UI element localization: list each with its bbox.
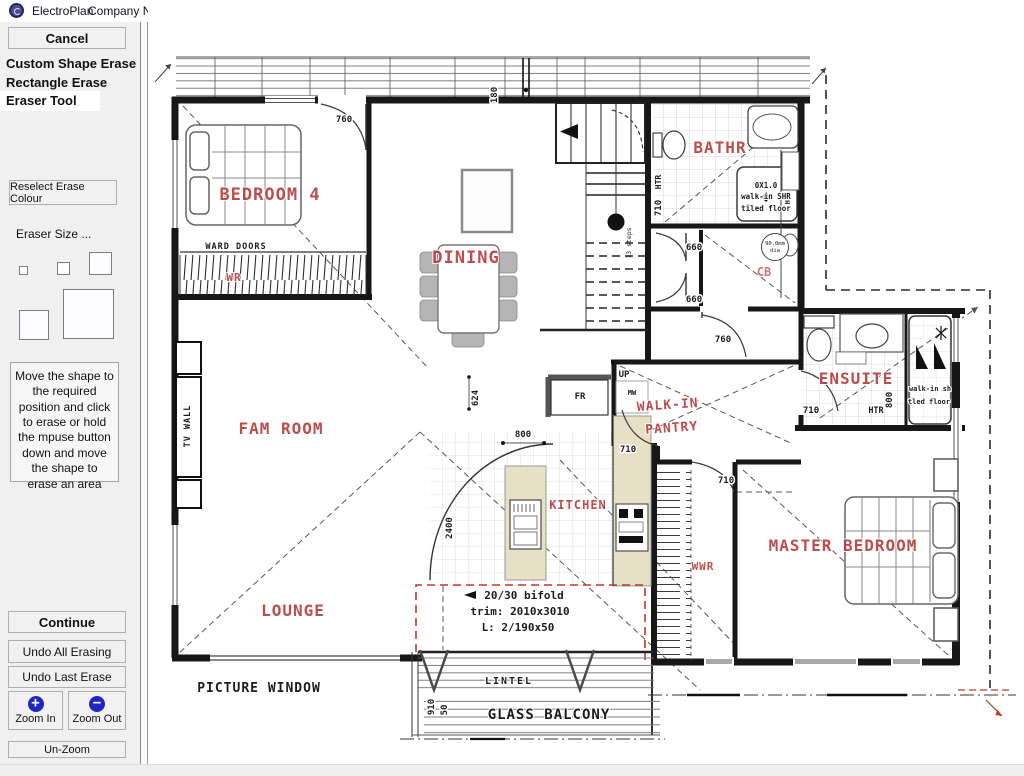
label-ens-shr-floor: tled floor: [908, 398, 950, 406]
plan-canvas[interactable]: 13 steps UP: [148, 0, 1024, 764]
dim-ensuite-door: 710: [803, 406, 819, 416]
app-title: ElectroPlan: [32, 4, 93, 18]
label-shr-type: walk-in SHR: [741, 192, 791, 201]
zoom-in-label: Zoom In: [15, 713, 55, 725]
label-fr: FR: [575, 392, 586, 402]
zoom-out-icon: −: [89, 696, 105, 712]
room-label-bedroom4: BEDROOM 4: [219, 185, 320, 205]
label-mw: MW: [628, 389, 637, 397]
dim-balcony-a: 910: [427, 699, 437, 715]
dim-hall-b: 660: [686, 295, 702, 305]
label-shr-floor: tiled floor: [741, 204, 791, 213]
room-label-ensuite: ENSUITE: [819, 369, 893, 388]
zoom-out-label: Zoom Out: [73, 713, 122, 725]
eraser-size-option-1[interactable]: [19, 266, 28, 275]
app-icon: [9, 3, 24, 18]
eraser-size-label: Eraser Size ...: [16, 227, 91, 241]
room-label-bathroom: BATHR: [693, 138, 746, 157]
room-label-cb: CB: [757, 265, 771, 279]
dim-deck: 180: [490, 87, 500, 103]
label-pipe-dia2: dia: [770, 248, 780, 254]
stairs-steps-note: 13 steps: [625, 227, 633, 258]
stairs-up-label: UP: [619, 370, 630, 380]
tool-sidebar: Cancel Custom Shape Erase Rectangle Eras…: [0, 22, 140, 764]
mode-eraser-tool[interactable]: Eraser Tool: [6, 93, 77, 108]
sidebar-splitter[interactable]: [140, 22, 148, 764]
cancel-button[interactable]: Cancel: [8, 27, 126, 49]
label-bifold-trim: trim: 2010x3010: [470, 605, 569, 618]
eraser-size-option-2[interactable]: [57, 262, 70, 275]
continue-button[interactable]: Continue: [8, 611, 126, 633]
label-lintel: LINTEL: [485, 676, 533, 687]
room-label-fam-room: FAM ROOM: [238, 419, 323, 438]
floor-plan-svg: 13 steps UP: [148, 0, 1024, 764]
eraser-size-option-3[interactable]: [89, 252, 112, 275]
undo-all-erasing-button[interactable]: Undo All Erasing: [8, 640, 126, 663]
label-glass-balcony: GLASS BALCONY: [488, 707, 611, 723]
dim-kitchen-l: 2400: [445, 517, 455, 539]
dim-hall-a: 660: [686, 243, 702, 253]
label-pipe-dia: 90.0mm: [765, 241, 786, 247]
reselect-erase-colour-button[interactable]: Reselect Erase Colour: [9, 180, 117, 205]
dim-bed4-door: 760: [336, 115, 352, 125]
room-label-dining: DINING: [432, 248, 499, 268]
label-shr-size: 0X1.0: [755, 181, 778, 190]
label-picture-window: PICTURE WINDOW: [197, 681, 321, 696]
dim-hall-c: 760: [715, 335, 731, 345]
room-label-lounge: LOUNGE: [261, 601, 325, 620]
dim-island: 624: [471, 389, 481, 406]
label-bifold-lintel: L: 2/190x50: [482, 621, 555, 634]
label-htr-bath: HTR: [654, 175, 663, 190]
eraser-size-option-4[interactable]: [19, 310, 49, 340]
zoom-in-icon: +: [28, 696, 44, 712]
label-tv-wall: TV WALL: [183, 405, 193, 448]
wir-shelves: [657, 470, 691, 660]
label-htr-ensuite: HTR: [868, 406, 884, 416]
dim-ensuite-w: 800: [885, 392, 895, 408]
dim-pantry-door: 710: [718, 476, 734, 486]
label-ward-doors: WARD DOORS: [205, 242, 266, 252]
mode-rectangle-erase[interactable]: Rectangle Erase: [6, 75, 107, 90]
room-label-master: MASTER BEDROOM: [769, 536, 918, 555]
un-zoom-button[interactable]: Un-Zoom: [8, 741, 126, 758]
dim-bath-door: 710: [654, 200, 664, 216]
room-label-pantry: PANTRY: [645, 419, 699, 438]
undo-last-erase-button[interactable]: Undo Last Erase: [8, 666, 126, 688]
label-bifold: 20/30 bifold: [484, 589, 563, 602]
zoom-in-button[interactable]: + Zoom In: [8, 691, 63, 730]
room-label-wwr: WWR: [692, 560, 715, 573]
room-label-wr: WR: [226, 271, 241, 284]
dim-kitchen-w: 800: [515, 430, 531, 440]
eraser-size-option-5[interactable]: [63, 289, 114, 339]
label-ens-shr-type: walk-in sh: [909, 385, 951, 393]
mode-custom-shape-erase[interactable]: Custom Shape Erase: [6, 56, 136, 71]
room-label-kitchen: KITCHEN: [549, 498, 607, 512]
status-strip: [0, 764, 1024, 776]
dim-kitchen-door: 710: [620, 445, 636, 455]
instructions-panel: Move the shape to the required position …: [10, 362, 119, 482]
staircase: 13 steps UP: [540, 103, 648, 380]
zoom-out-button[interactable]: − Zoom Out: [68, 691, 126, 730]
dim-balcony-b: 50: [440, 705, 450, 716]
